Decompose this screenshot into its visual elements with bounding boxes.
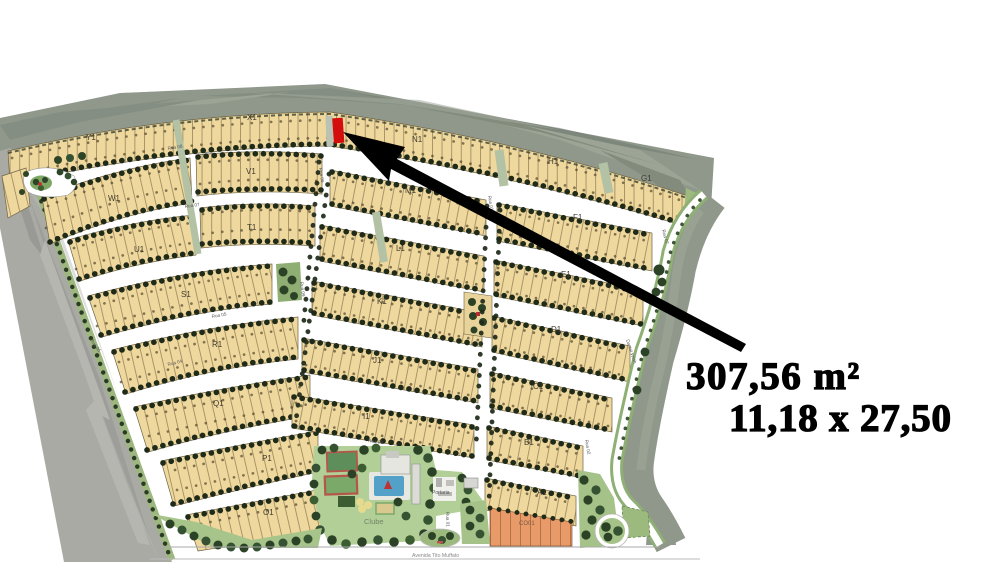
svg-text:H1: H1	[548, 157, 559, 166]
svg-text:X1: X1	[247, 113, 257, 122]
svg-text:Rua 01: Rua 01	[445, 512, 451, 527]
svg-text:11,18 x 27,50: 11,18 x 27,50	[729, 397, 952, 440]
svg-text:T1: T1	[247, 223, 257, 232]
svg-text:J1: J1	[373, 356, 382, 365]
svg-text:O1: O1	[263, 508, 274, 517]
svg-text:M1: M1	[405, 186, 417, 195]
svg-text:W1: W1	[108, 194, 121, 203]
svg-text:Avenida Tito Muffato: Avenida Tito Muffato	[412, 553, 459, 559]
svg-text:R1: R1	[212, 340, 223, 349]
svg-text:307,56 m²: 307,56 m²	[686, 355, 861, 398]
svg-text:K1: K1	[377, 297, 387, 306]
svg-text:A1: A1	[537, 488, 547, 497]
svg-text:Y1: Y1	[86, 133, 96, 142]
svg-text:Portaria: Portaria	[432, 490, 450, 496]
svg-text:Q1: Q1	[213, 399, 224, 408]
svg-text:G1: G1	[641, 174, 652, 183]
svg-text:V1: V1	[246, 167, 256, 176]
svg-text:N1: N1	[412, 135, 423, 144]
svg-text:L1: L1	[396, 244, 405, 253]
svg-text:F1: F1	[573, 213, 583, 222]
svg-text:CO01: CO01	[519, 521, 535, 527]
svg-text:D1: D1	[551, 325, 562, 334]
svg-text:I1: I1	[363, 412, 370, 421]
svg-text:Clube: Clube	[364, 517, 384, 526]
svg-text:U1: U1	[134, 245, 145, 254]
svg-text:P1: P1	[262, 454, 272, 463]
svg-text:B1: B1	[524, 438, 534, 447]
svg-text:S1: S1	[181, 290, 191, 299]
svg-text:E1: E1	[561, 270, 571, 279]
svg-text:C1: C1	[533, 382, 544, 391]
